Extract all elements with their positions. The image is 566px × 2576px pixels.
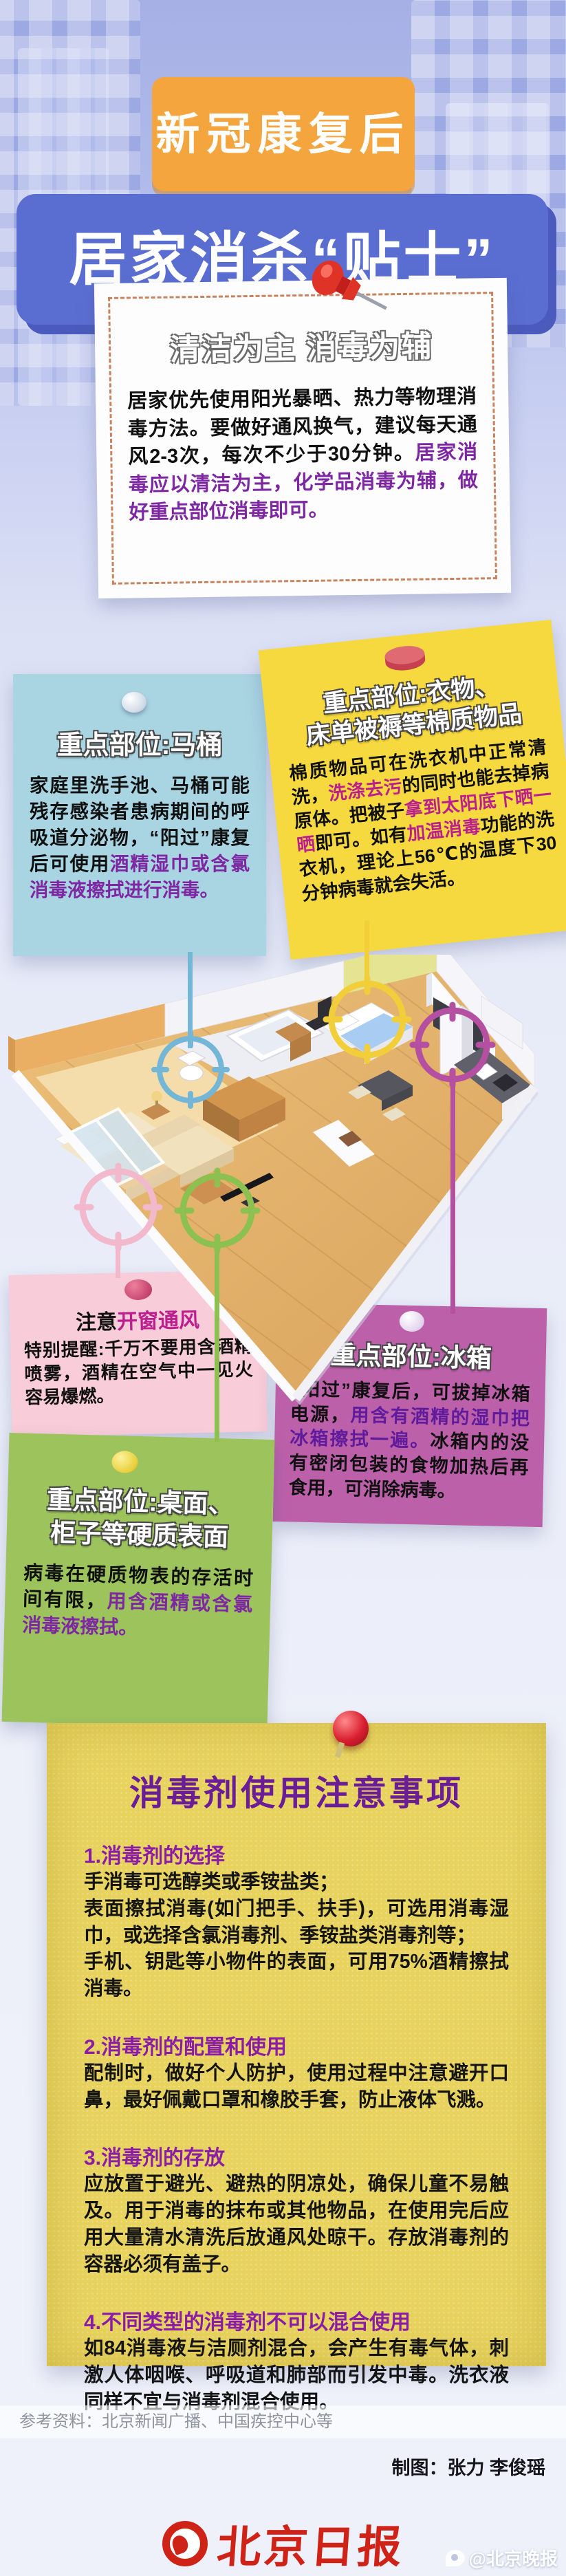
- red-cylinder-pin-icon: [384, 644, 426, 678]
- dashed-frame: [108, 292, 497, 585]
- reference-text: 参考资料：北京新闻广播、中国疾控中心等: [19, 2405, 566, 2438]
- intro-card: 清洁为主 消毒为辅 居家优先使用阳光暴晒、热力等物理消毒方法。要做好通风换气，建…: [94, 278, 511, 598]
- newspaper-logo-icon: [162, 2521, 208, 2566]
- red-pushpin-icon: [300, 256, 404, 323]
- yellow-pin-icon: [111, 1451, 138, 1473]
- toilet: [179, 1065, 203, 1081]
- room-illustration: [0, 955, 566, 1409]
- reference-band: 参考资料：北京新闻广播、中国疾控中心等: [0, 2405, 566, 2438]
- note-title: 消毒剂使用注意事项: [47, 1766, 546, 1815]
- toilet-card-body: 家庭里洗手池、马桶可能残存感染者患病期间的呼吸道分泌物，“阳过”康复后可使用酒精…: [30, 772, 250, 903]
- toilet-card-title: 重点部位:马桶: [13, 724, 266, 761]
- lamp-stem: [155, 1101, 158, 1107]
- disinfectant-note: 消毒剂使用注意事项 1.消毒剂的选择 手消毒可选醇类或季铵盐类； 表面擦拭消毒(…: [47, 1723, 546, 2366]
- connector-line-window: [116, 1240, 120, 1278]
- note-section-body: 配制时，做好个人防护，使用过程中注意避开口鼻，最好佩戴口罩和橡胶手套，防止液体飞…: [84, 2060, 509, 2114]
- red-ballpin-icon: [333, 1711, 369, 1746]
- connector-line-table: [215, 1242, 219, 1442]
- note-section: 4.不同类型的消毒剂不可以混合使用 如84消毒液与洁厕剂混合，会产生有毒气体，刺…: [84, 2305, 509, 2415]
- toilet-card: 重点部位:马桶 家庭里洗手池、马桶可能残存感染者患病期间的呼吸道分泌物，“阳过”…: [13, 674, 266, 956]
- note-section-heading: 4.不同类型的消毒剂不可以混合使用: [84, 2305, 509, 2335]
- credit-text: 制图：张力 李俊瑶: [391, 2453, 545, 2480]
- note-section-heading: 2.消毒剂的配置和使用: [84, 2030, 509, 2060]
- note-section-body: 手消毒可选醇类或季铵盐类； 表面擦拭消毒(如门把手、扶手)，可选用消毒湿巾，或选…: [84, 1869, 509, 2002]
- logo-text: 北京日报: [215, 2512, 406, 2575]
- connector-line-fridge: [450, 1074, 455, 1314]
- note-section-heading: 1.消毒剂的选择: [84, 1839, 509, 1869]
- weibo-watermark: @北京晚报: [446, 2545, 558, 2570]
- white-pin-icon: [122, 692, 146, 713]
- note-section-body: 应放置于避光、避热的阴凉处，确保儿童不易触及。用于消毒的抹布或其他物品，在使用完…: [84, 2171, 509, 2277]
- note-section: 2.消毒剂的配置和使用 配制时，做好个人防护，使用过程中注意避开口鼻，最好佩戴口…: [84, 2030, 509, 2114]
- lamp: [151, 1091, 162, 1102]
- surface-card-title: 重点部位:桌面、 柜子等硬质表面: [6, 1482, 273, 1555]
- surface-card-body: 病毒在硬质物表的存活时间有限，用含酒精或含氯消毒液擦拭。: [22, 1560, 254, 1645]
- beijing-daily-logo: 北京日报: [162, 2512, 404, 2575]
- note-section: 1.消毒剂的选择 手消毒可选醇类或季铵盐类； 表面擦拭消毒(如门把手、扶手)，可…: [84, 1839, 509, 2002]
- surface-card: 重点部位:桌面、 柜子等硬质表面 病毒在硬质物表的存活时间有限，用含酒精或含氯消…: [2, 1433, 275, 1729]
- connector-line-toilet: [188, 952, 193, 1048]
- interior-wall-edge: [426, 973, 432, 1007]
- note-section: 3.消毒剂的存放 应放置于避光、避热的阴凉处，确保儿童不易触及。用于消毒的抹布或…: [84, 2141, 509, 2277]
- poster: 新冠康复后 居家消杀“贴士” 清洁为主 消毒为辅 居家优先使用阳光暴晒、热力等物…: [0, 0, 566, 2576]
- laundry-card-body: 棉质物品可在洗衣机中正常清洗，洗涤去污的同时也能去掉病原体。把被子拿到太阳底下晒…: [288, 735, 560, 907]
- laundry-card: 重点部位:衣物、 床单被褥等棉质物品 棉质物品可在洗衣机中正常清洗，洗涤去污的同…: [259, 620, 566, 960]
- header-badge: 新冠康复后: [152, 77, 415, 191]
- orange-wall-edge: [8, 1036, 15, 1073]
- weibo-icon: [446, 2550, 465, 2566]
- watermark-text: @北京晚报: [469, 2545, 558, 2570]
- note-section-heading: 3.消毒剂的存放: [84, 2141, 509, 2171]
- connector-line-bed: [364, 920, 369, 991]
- note-section-body: 如84消毒液与洁厕剂混合，会产生有毒气体，刺激人体咽喉、呼吸道和肺部而引发中毒。…: [84, 2335, 509, 2415]
